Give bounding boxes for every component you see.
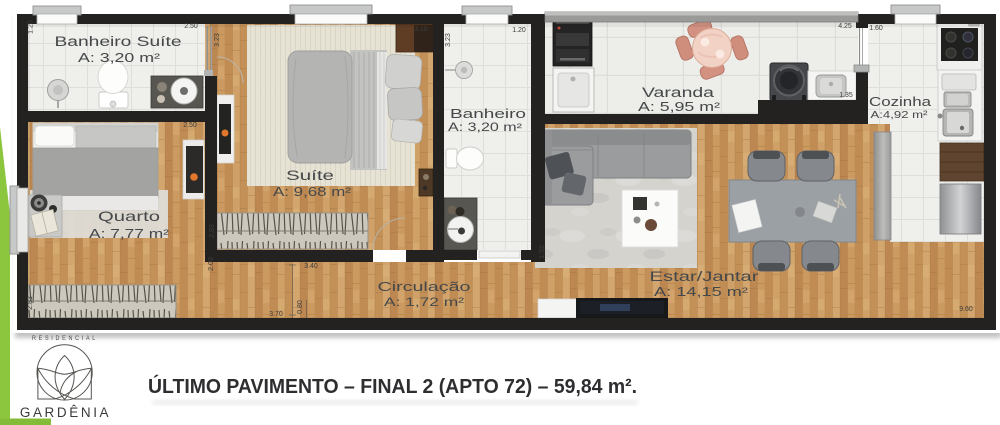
svg-text:9.60: 9.60: [959, 306, 973, 313]
svg-text:1.92: 1.92: [539, 245, 546, 259]
svg-text:A: 1,72 m²: A: 1,72 m²: [384, 295, 464, 309]
svg-text:A: 5,95 m²: A: 5,95 m²: [638, 100, 720, 114]
svg-text:ÚLTIMO PAVIMENTO – FINAL 2 (AP: ÚLTIMO PAVIMENTO – FINAL 2 (APTO 72) – 5…: [148, 374, 637, 398]
svg-text:Cozinha: Cozinha: [869, 94, 932, 109]
svg-text:3.10: 3.10: [414, 26, 428, 33]
svg-text:Varanda: Varanda: [642, 85, 715, 100]
svg-text:A: 3,20 m²: A: 3,20 m²: [448, 122, 522, 134]
svg-text:Circulação: Circulação: [378, 279, 471, 294]
svg-text:1.60: 1.60: [869, 25, 883, 32]
svg-text:A: 14,15 m²: A: 14,15 m²: [654, 285, 748, 299]
svg-text:Banheiro: Banheiro: [450, 106, 526, 121]
svg-text:1.20: 1.20: [28, 20, 35, 34]
svg-text:1.20: 1.20: [512, 27, 526, 34]
svg-text:Quarto: Quarto: [98, 208, 160, 224]
svg-text:2.03: 2.03: [208, 257, 215, 271]
svg-text:2.50: 2.50: [184, 23, 198, 30]
svg-text:A: 7,77 m²: A: 7,77 m²: [89, 227, 169, 241]
svg-text:3.23: 3.23: [445, 33, 452, 47]
svg-text:3.23: 3.23: [214, 33, 221, 47]
svg-text:RESIDENCIAL: RESIDENCIAL: [32, 336, 98, 342]
svg-text:A: 3,20 m²: A: 3,20 m²: [78, 51, 160, 65]
svg-text:Suíte: Suíte: [286, 168, 334, 183]
svg-text:1.35: 1.35: [839, 92, 853, 99]
svg-text:0.80: 0.80: [297, 300, 304, 314]
svg-text:GARDÊNIA: GARDÊNIA: [20, 405, 111, 420]
svg-text:A:4,92 m²: A:4,92 m²: [871, 109, 929, 121]
svg-text:4.25: 4.25: [838, 23, 852, 30]
svg-text:3.70: 3.70: [269, 311, 283, 318]
svg-text:Banheiro Suíte: Banheiro Suíte: [55, 34, 182, 49]
svg-text:2.83: 2.83: [27, 296, 34, 310]
svg-text:2.83: 2.83: [209, 224, 216, 238]
svg-text:2.50: 2.50: [183, 122, 197, 129]
svg-text:3.40: 3.40: [304, 263, 318, 270]
svg-text:Estar/Jantar: Estar/Jantar: [650, 269, 760, 284]
svg-text:A: 9,68 m²: A: 9,68 m²: [273, 185, 351, 199]
